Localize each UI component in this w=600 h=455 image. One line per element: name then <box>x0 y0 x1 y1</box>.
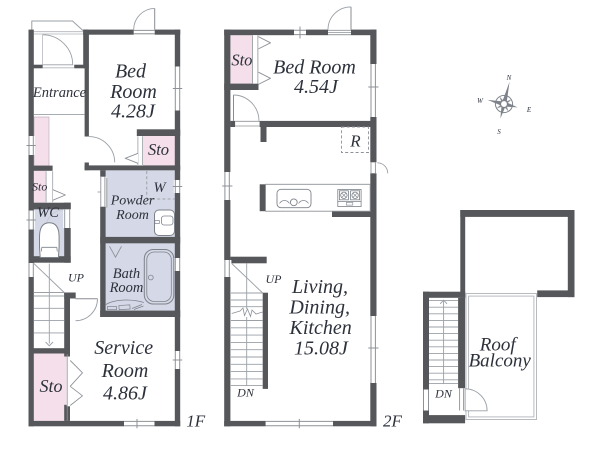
svg-text:E: E <box>526 106 532 114</box>
svg-text:UP: UP <box>68 271 85 285</box>
svg-text:Dining,: Dining, <box>288 297 350 319</box>
svg-text:Powder: Powder <box>110 194 155 209</box>
svg-text:4.28J: 4.28J <box>111 101 156 123</box>
svg-text:Sto: Sto <box>148 140 169 159</box>
svg-text:DN: DN <box>236 386 255 400</box>
svg-text:1F: 1F <box>186 411 206 430</box>
svg-text:Room: Room <box>101 360 149 382</box>
svg-text:Living,: Living, <box>291 276 348 298</box>
svg-text:4.86J: 4.86J <box>103 383 148 405</box>
svg-text:Sto: Sto <box>231 51 252 70</box>
svg-text:2F: 2F <box>383 411 403 430</box>
svg-text:WC: WC <box>37 205 59 221</box>
svg-text:UP: UP <box>266 272 283 286</box>
svg-text:Sto: Sto <box>32 180 47 194</box>
svg-text:Balcony: Balcony <box>469 351 532 372</box>
svg-text:4.54J: 4.54J <box>294 76 339 98</box>
svg-text:Bed: Bed <box>115 61 147 83</box>
svg-text:15.08J: 15.08J <box>294 338 349 360</box>
svg-text:Entrance: Entrance <box>32 85 87 101</box>
svg-text:S: S <box>497 128 501 136</box>
svg-text:R: R <box>349 132 361 151</box>
svg-text:DN: DN <box>434 387 453 401</box>
svg-text:Room: Room <box>109 280 144 296</box>
svg-text:Service: Service <box>94 337 153 359</box>
svg-text:N: N <box>506 74 512 82</box>
svg-text:W: W <box>153 180 167 196</box>
svg-text:Sto: Sto <box>39 376 62 396</box>
svg-text:Kitchen: Kitchen <box>288 317 351 339</box>
svg-text:Room: Room <box>115 208 149 223</box>
